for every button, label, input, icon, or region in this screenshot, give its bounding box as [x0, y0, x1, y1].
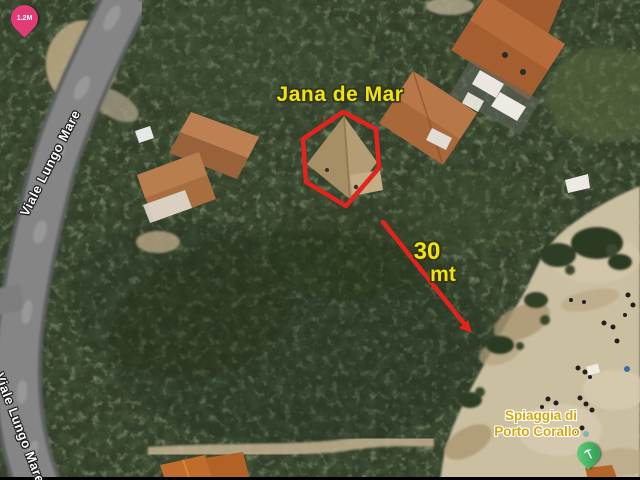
beach-umbrella-icon — [577, 442, 600, 465]
satellite-map-view[interactable]: Jana de Mar 30 mt Viale Lungo Mare Viale… — [0, 0, 640, 480]
map-pin-icon[interactable]: 1.2M — [5, 0, 43, 38]
property-name-label: Jana de Mar — [277, 83, 404, 107]
price-pin-label: 1.2M — [11, 5, 38, 32]
beach-poi-label-line2[interactable]: Porto Corallo — [494, 424, 580, 439]
distance-value-label: 30 — [414, 238, 441, 266]
beach-pin-icon[interactable] — [572, 437, 605, 470]
beach-poi-label-line1[interactable]: Spiaggia di — [505, 408, 577, 423]
distance-unit-label: mt — [430, 263, 456, 287]
